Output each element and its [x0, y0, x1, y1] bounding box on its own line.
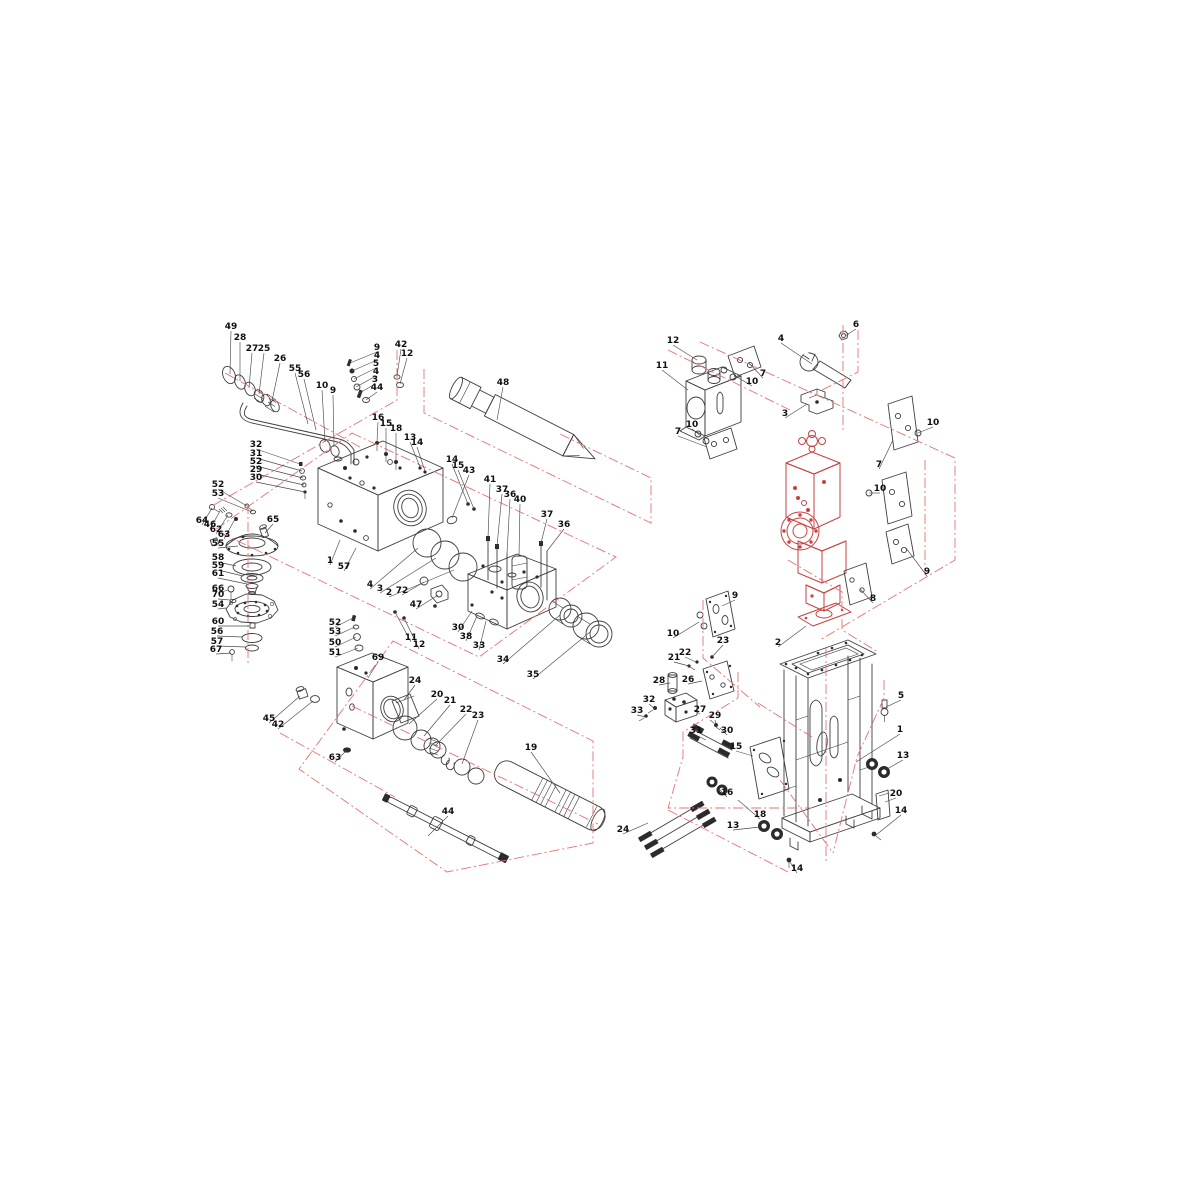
- part-label-30: 30: [721, 726, 734, 736]
- part-label-55: 55: [212, 539, 225, 549]
- part-label-67: 67: [210, 645, 223, 655]
- part-label-5: 5: [898, 691, 904, 701]
- part-label-51: 51: [329, 648, 342, 658]
- part-label-60: 60: [212, 617, 225, 627]
- plug-and-ring-45-42: [296, 686, 351, 753]
- part-label-26: 26: [682, 675, 695, 685]
- part-label-1: 1: [327, 556, 333, 566]
- part-label-10: 10: [927, 418, 940, 428]
- fitting-cluster-top: [347, 359, 427, 474]
- fasteners-21-22-23: [687, 655, 713, 670]
- leader-line-34: [503, 615, 560, 664]
- part-label-33: 33: [631, 706, 644, 716]
- part-label-32: 32: [643, 695, 656, 705]
- plate-26: [703, 661, 734, 699]
- part-label-41: 41: [484, 475, 497, 485]
- rear-head-block: [337, 653, 408, 739]
- part-label-27: 27: [246, 344, 259, 354]
- part-label-12: 12: [667, 336, 680, 346]
- part-label-10: 10: [667, 629, 680, 639]
- part-label-9: 9: [330, 386, 336, 396]
- part-label-36: 36: [558, 520, 571, 530]
- part-label-7: 7: [876, 460, 882, 470]
- part-label-56: 56: [298, 370, 311, 380]
- plugs-13-bottom: [758, 820, 783, 840]
- leader-line-22: [435, 714, 466, 746]
- leader-line-36: [547, 529, 564, 551]
- control-valve-assembly: [781, 431, 846, 612]
- cover-plate-15: [750, 737, 789, 799]
- plate-8: [844, 563, 872, 605]
- part-label-6: 6: [853, 320, 859, 330]
- leader-line-44: [428, 816, 448, 836]
- part-label-19: 19: [525, 743, 538, 753]
- part-label-43: 43: [463, 466, 476, 476]
- red-boundary-path: [280, 733, 395, 797]
- part-label-14: 14: [895, 806, 908, 816]
- part-label-4: 4: [367, 580, 373, 590]
- part-label-27: 27: [694, 705, 707, 715]
- leader-line-16: [377, 422, 378, 442]
- part-label-34: 34: [497, 655, 510, 665]
- leader-line-9: [333, 395, 334, 447]
- part-label-25: 25: [258, 344, 271, 354]
- part-label-28: 28: [653, 676, 666, 686]
- manifold-block-27: [665, 693, 697, 722]
- part-label-7: 7: [760, 369, 766, 379]
- leader-line-41: [488, 484, 490, 538]
- diagram-canvas: Exploded parts diagram: [0, 0, 1200, 1200]
- part-label-14: 14: [791, 864, 804, 874]
- part-label-63: 63: [329, 753, 342, 763]
- fastener-column-50-53: [351, 615, 363, 651]
- part-label-7: 7: [675, 427, 681, 437]
- part-label-38: 38: [460, 632, 473, 642]
- part-label-1: 1: [897, 725, 903, 735]
- part-label-57: 57: [338, 562, 351, 572]
- part-label-21: 21: [444, 696, 457, 706]
- part-label-10: 10: [686, 420, 699, 430]
- part-label-44: 44: [371, 383, 384, 393]
- part-label-2: 2: [775, 638, 781, 648]
- part-label-4: 4: [778, 334, 784, 344]
- part-label-8: 8: [870, 594, 876, 604]
- part-label-48: 48: [497, 378, 510, 388]
- leader-line-23: [462, 720, 478, 764]
- leader-line-3: [785, 404, 807, 418]
- leader-line-4: [370, 548, 418, 589]
- part-label-40: 40: [514, 495, 527, 505]
- part-label-31: 31: [690, 726, 703, 736]
- part-label-13: 13: [897, 751, 910, 761]
- red-boundary-path: [299, 641, 593, 872]
- leader-line-2: [778, 626, 806, 647]
- leader-line-19: [531, 752, 560, 793]
- part-label-28: 28: [234, 333, 247, 343]
- part-label-53: 53: [212, 489, 225, 499]
- part-label-14: 14: [411, 438, 424, 448]
- part-label-3: 3: [782, 409, 788, 419]
- leader-line-1: [856, 734, 900, 762]
- leader-line-21: [424, 705, 450, 736]
- part-label-10: 10: [746, 377, 759, 387]
- chisel: [447, 375, 600, 469]
- part-label-61: 61: [212, 569, 225, 579]
- part-label-12: 12: [401, 349, 414, 359]
- leader-line-31: [256, 458, 302, 471]
- leader-line-10: [322, 390, 325, 442]
- part-label-33: 33: [473, 641, 486, 651]
- diaphragm-flange-plate: [226, 594, 278, 661]
- red-boundary-lines: [212, 325, 955, 872]
- main-frame: [780, 640, 880, 850]
- part-label-70: 70: [212, 590, 225, 600]
- bracket-plate-lower: [695, 428, 737, 459]
- push-rod: [381, 791, 510, 865]
- cross-block: [801, 389, 833, 414]
- part-label-20: 20: [431, 690, 444, 700]
- part-label-42: 42: [272, 720, 285, 730]
- exploded-parts-diagram: 4928272526555610994543444212161518131414…: [0, 0, 1200, 1200]
- leader-line-11: [662, 370, 688, 390]
- red-boundary-path: [758, 703, 812, 737]
- part-label-21: 21: [668, 653, 681, 663]
- leader-line-48: [497, 387, 503, 420]
- part-label-9: 9: [732, 591, 738, 601]
- red-boundary-path: [780, 780, 833, 853]
- side-plates-right: [866, 396, 921, 564]
- leader-line-32: [256, 449, 300, 464]
- fitting-47: [431, 585, 448, 608]
- part-label-11: 11: [656, 361, 669, 371]
- studs-and-pins: [466, 502, 547, 600]
- leader-line-37: [541, 519, 547, 543]
- part-label-13: 13: [727, 821, 740, 831]
- part-label-10: 10: [874, 484, 887, 494]
- red-boundary-path: [700, 342, 955, 640]
- part-label-56: 56: [211, 627, 224, 637]
- part-label-12: 12: [413, 640, 426, 650]
- part-label-24: 24: [409, 676, 422, 686]
- part-label-23: 23: [717, 636, 730, 646]
- leader-line-12: [400, 358, 407, 384]
- leader-line-10: [692, 429, 701, 436]
- part-label-16: 16: [721, 788, 734, 798]
- part-label-44: 44: [442, 807, 455, 817]
- red-boundary-path: [822, 330, 858, 390]
- part-label-20: 20: [890, 789, 903, 799]
- leader-line-35: [533, 632, 590, 679]
- part-label-3: 3: [377, 584, 383, 594]
- leader-line-23: [712, 645, 723, 657]
- part-label-65: 65: [267, 515, 280, 525]
- part-label-10: 10: [316, 381, 329, 391]
- part-label-47: 47: [410, 600, 423, 610]
- part-label-30: 30: [250, 473, 263, 483]
- part-label-23: 23: [472, 711, 485, 721]
- part-label-15: 15: [730, 742, 743, 752]
- part-label-24: 24: [617, 825, 630, 835]
- part-label-35: 35: [527, 670, 540, 680]
- leader-line-55: [295, 373, 308, 424]
- part-label-72: 72: [396, 586, 409, 596]
- part-label-22: 22: [460, 705, 473, 715]
- leader-line-56: [304, 379, 316, 430]
- part-label-49: 49: [225, 322, 238, 332]
- leader-line-44: [366, 392, 377, 400]
- leader-line-69: [368, 662, 378, 678]
- part-label-53: 53: [329, 627, 342, 637]
- part-label-29: 29: [709, 711, 722, 721]
- red-boundary-path: [215, 433, 616, 657]
- leader-line-13: [887, 760, 903, 769]
- part-label-69: 69: [372, 653, 385, 663]
- red-boundary-path: [668, 810, 788, 872]
- red-boundary-path: [703, 600, 760, 707]
- cylinder-o-rings: [413, 515, 477, 585]
- part-label-18: 18: [390, 424, 403, 434]
- nut-6: [839, 331, 848, 340]
- leader-line-26: [272, 363, 280, 401]
- bracket-plate-upper: [721, 346, 761, 380]
- part-label-50: 50: [329, 638, 342, 648]
- part-label-2: 2: [386, 588, 392, 598]
- part-label-26: 26: [274, 354, 287, 364]
- leader-line-25: [259, 353, 264, 394]
- leader-line-36: [507, 499, 510, 554]
- leader-line-12: [673, 345, 697, 360]
- part-label-37: 37: [541, 510, 554, 520]
- piston: [491, 757, 609, 834]
- part-label-22: 22: [679, 648, 692, 658]
- red-boundary-path: [352, 706, 598, 824]
- part-label-54: 54: [212, 600, 225, 610]
- leader-line-5: [886, 700, 901, 707]
- part-label-9: 9: [924, 567, 930, 577]
- part-label-18: 18: [754, 810, 767, 820]
